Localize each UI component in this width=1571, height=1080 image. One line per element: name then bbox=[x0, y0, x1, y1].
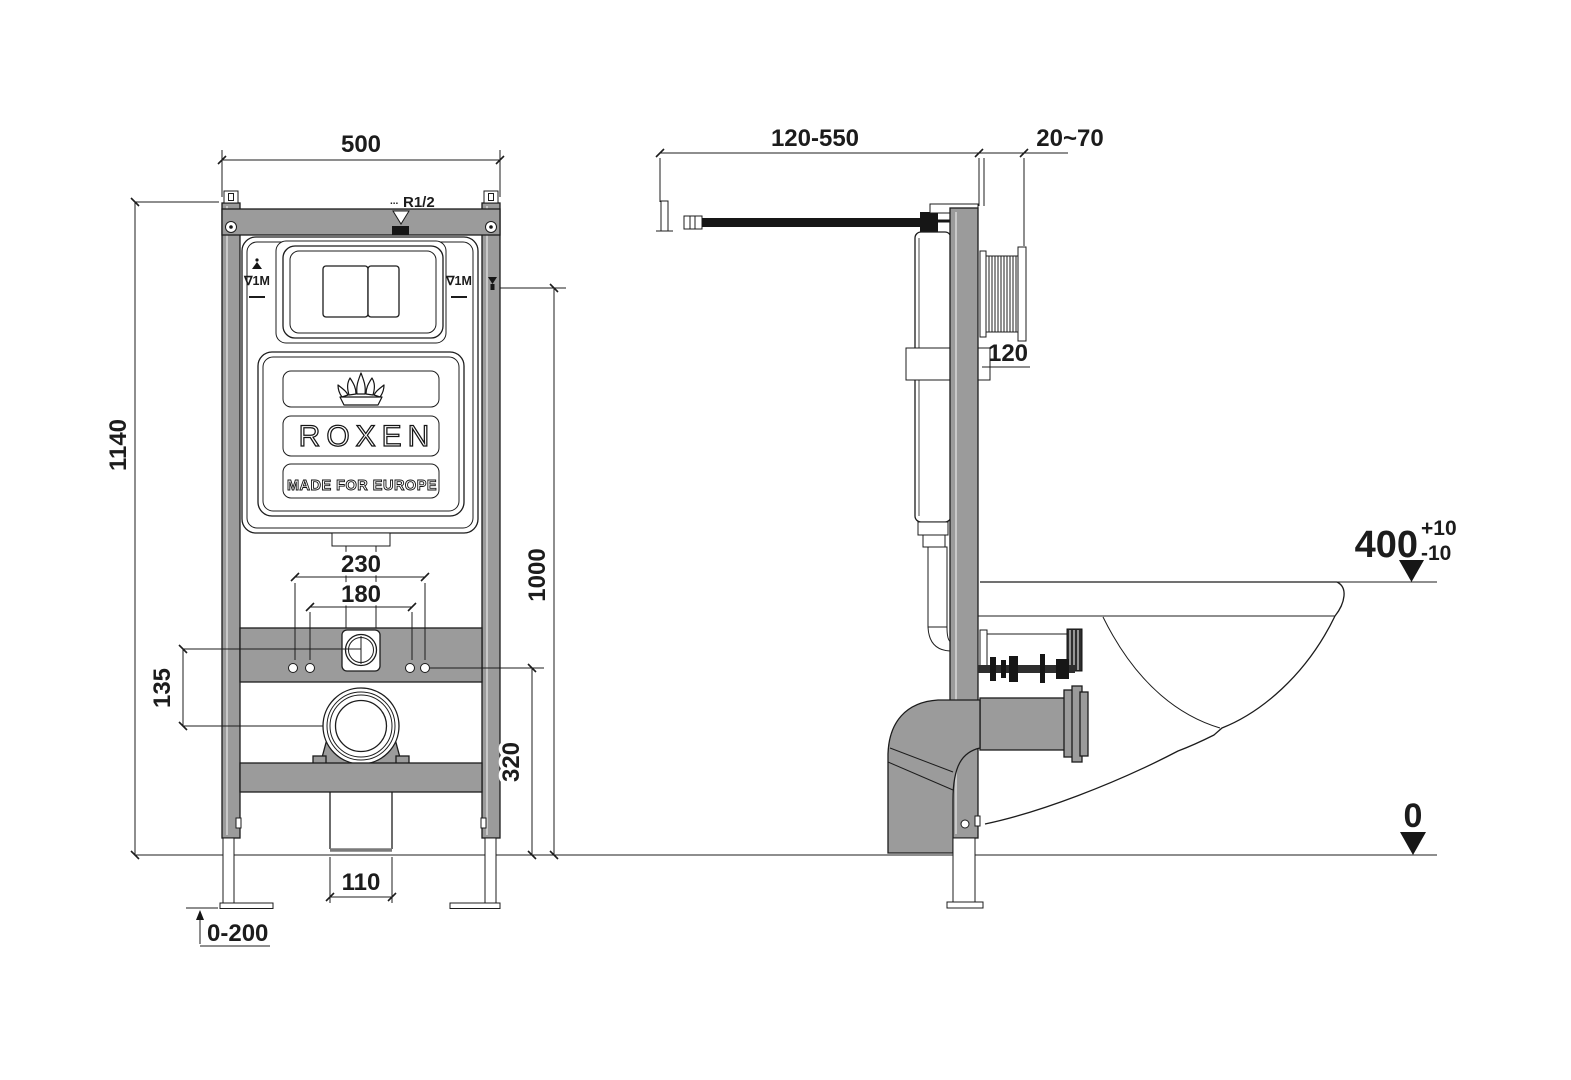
brand-name: ROXEN bbox=[299, 420, 436, 453]
level-mark-left-label: ∇1M bbox=[243, 274, 270, 288]
flush-button-large bbox=[323, 266, 368, 317]
flush-button-small bbox=[368, 266, 399, 317]
supply-thread-label: R1/2 bbox=[403, 194, 435, 211]
level-floor-0: 0 bbox=[1400, 797, 1426, 855]
waste-outlet bbox=[313, 688, 409, 765]
dim-label-1000: 1000 bbox=[524, 548, 551, 601]
dim-supply-reach-120-550: 120-550 bbox=[660, 125, 984, 206]
dim-drain-110: 110 bbox=[330, 857, 392, 903]
dim-label-120: 120 bbox=[988, 340, 1028, 367]
brand-tagline: MADE FOR EUROPE bbox=[287, 478, 437, 494]
flush-pipe-side bbox=[928, 547, 951, 651]
installation-drawing: 500 1140 ... R1/2 bbox=[0, 0, 1571, 1080]
dim-label-120-550: 120-550 bbox=[771, 125, 859, 152]
dim-label-400-plus: +10 bbox=[1421, 517, 1457, 540]
dim-label-0: 0 bbox=[1404, 797, 1423, 835]
frame-top-bar bbox=[222, 209, 500, 235]
dim-height-1140: 1140 bbox=[105, 202, 219, 855]
supply-connector bbox=[920, 212, 938, 232]
dim-label-180: 180 bbox=[341, 581, 381, 608]
side-view: 120-550 20~70 bbox=[656, 125, 1457, 908]
waste-connection-pipe bbox=[980, 686, 1088, 762]
foot-plate-left bbox=[220, 903, 273, 909]
front-view: 500 1140 ... R1/2 bbox=[105, 131, 566, 947]
level-mark-right-label: ∇1M bbox=[445, 274, 472, 288]
dim-label-110: 110 bbox=[342, 869, 381, 896]
foot-plate-right bbox=[450, 903, 500, 909]
top-hanger-tabs bbox=[224, 191, 498, 203]
corrugated-extension bbox=[980, 247, 1026, 341]
dim-label-0-200: 0-200 bbox=[207, 920, 268, 947]
supply-thread-prefix: ... bbox=[390, 196, 399, 207]
cistern-side bbox=[915, 232, 951, 547]
dim-label-230: 230 bbox=[341, 551, 381, 578]
inlet-fitting bbox=[342, 630, 380, 671]
dim-label-320: 320 bbox=[498, 742, 525, 782]
cistern-front: ∇1M ∇1M RO bbox=[242, 237, 478, 533]
dim-leg-adjust-0-200: 0-200 bbox=[186, 908, 270, 947]
drain-channel bbox=[330, 792, 392, 850]
water-supply-arm bbox=[656, 201, 950, 232]
level-bowl-height-400: 400 +10 -10 bbox=[1335, 517, 1457, 582]
technical-drawing-canvas: 500 1140 ... R1/2 bbox=[0, 0, 1571, 1080]
brand-panel: ROXEN MADE FOR EUROPE bbox=[258, 352, 464, 516]
dim-label-135: 135 bbox=[149, 668, 176, 708]
dim-width-500: 500 bbox=[222, 131, 500, 197]
dim-label-400-minus: -10 bbox=[1421, 542, 1451, 565]
lower-crossbar bbox=[240, 763, 482, 792]
dim-label-20-70: 20~70 bbox=[1036, 125, 1103, 152]
column-hole bbox=[961, 820, 969, 828]
flush-plate bbox=[276, 241, 446, 343]
dim-label-400: 400 bbox=[1355, 524, 1418, 566]
dim-label-width: 500 bbox=[341, 131, 381, 158]
dim-label-height: 1140 bbox=[105, 419, 132, 471]
dim-frame-depth-120: 120 bbox=[982, 340, 1030, 367]
frame-left-column bbox=[222, 203, 240, 838]
dim-wall-clearance-20-70: 20~70 bbox=[979, 125, 1104, 246]
